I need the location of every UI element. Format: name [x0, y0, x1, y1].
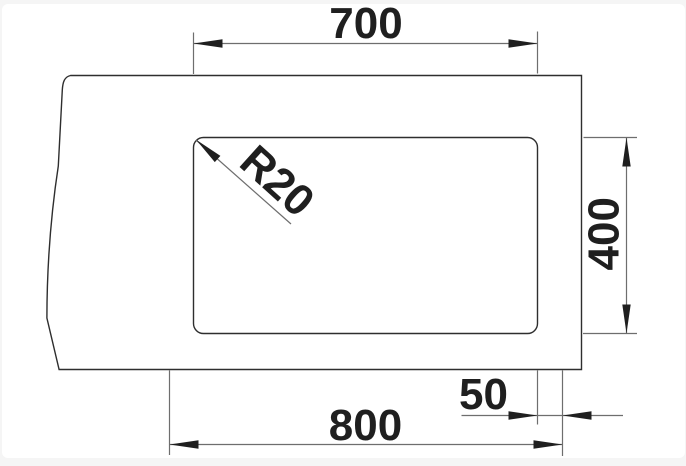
svg-text:800: 800 — [329, 401, 402, 450]
svg-text:50: 50 — [459, 370, 508, 419]
svg-text:R20: R20 — [231, 136, 324, 226]
svg-text:400: 400 — [580, 197, 629, 270]
svg-text:700: 700 — [329, 0, 402, 48]
